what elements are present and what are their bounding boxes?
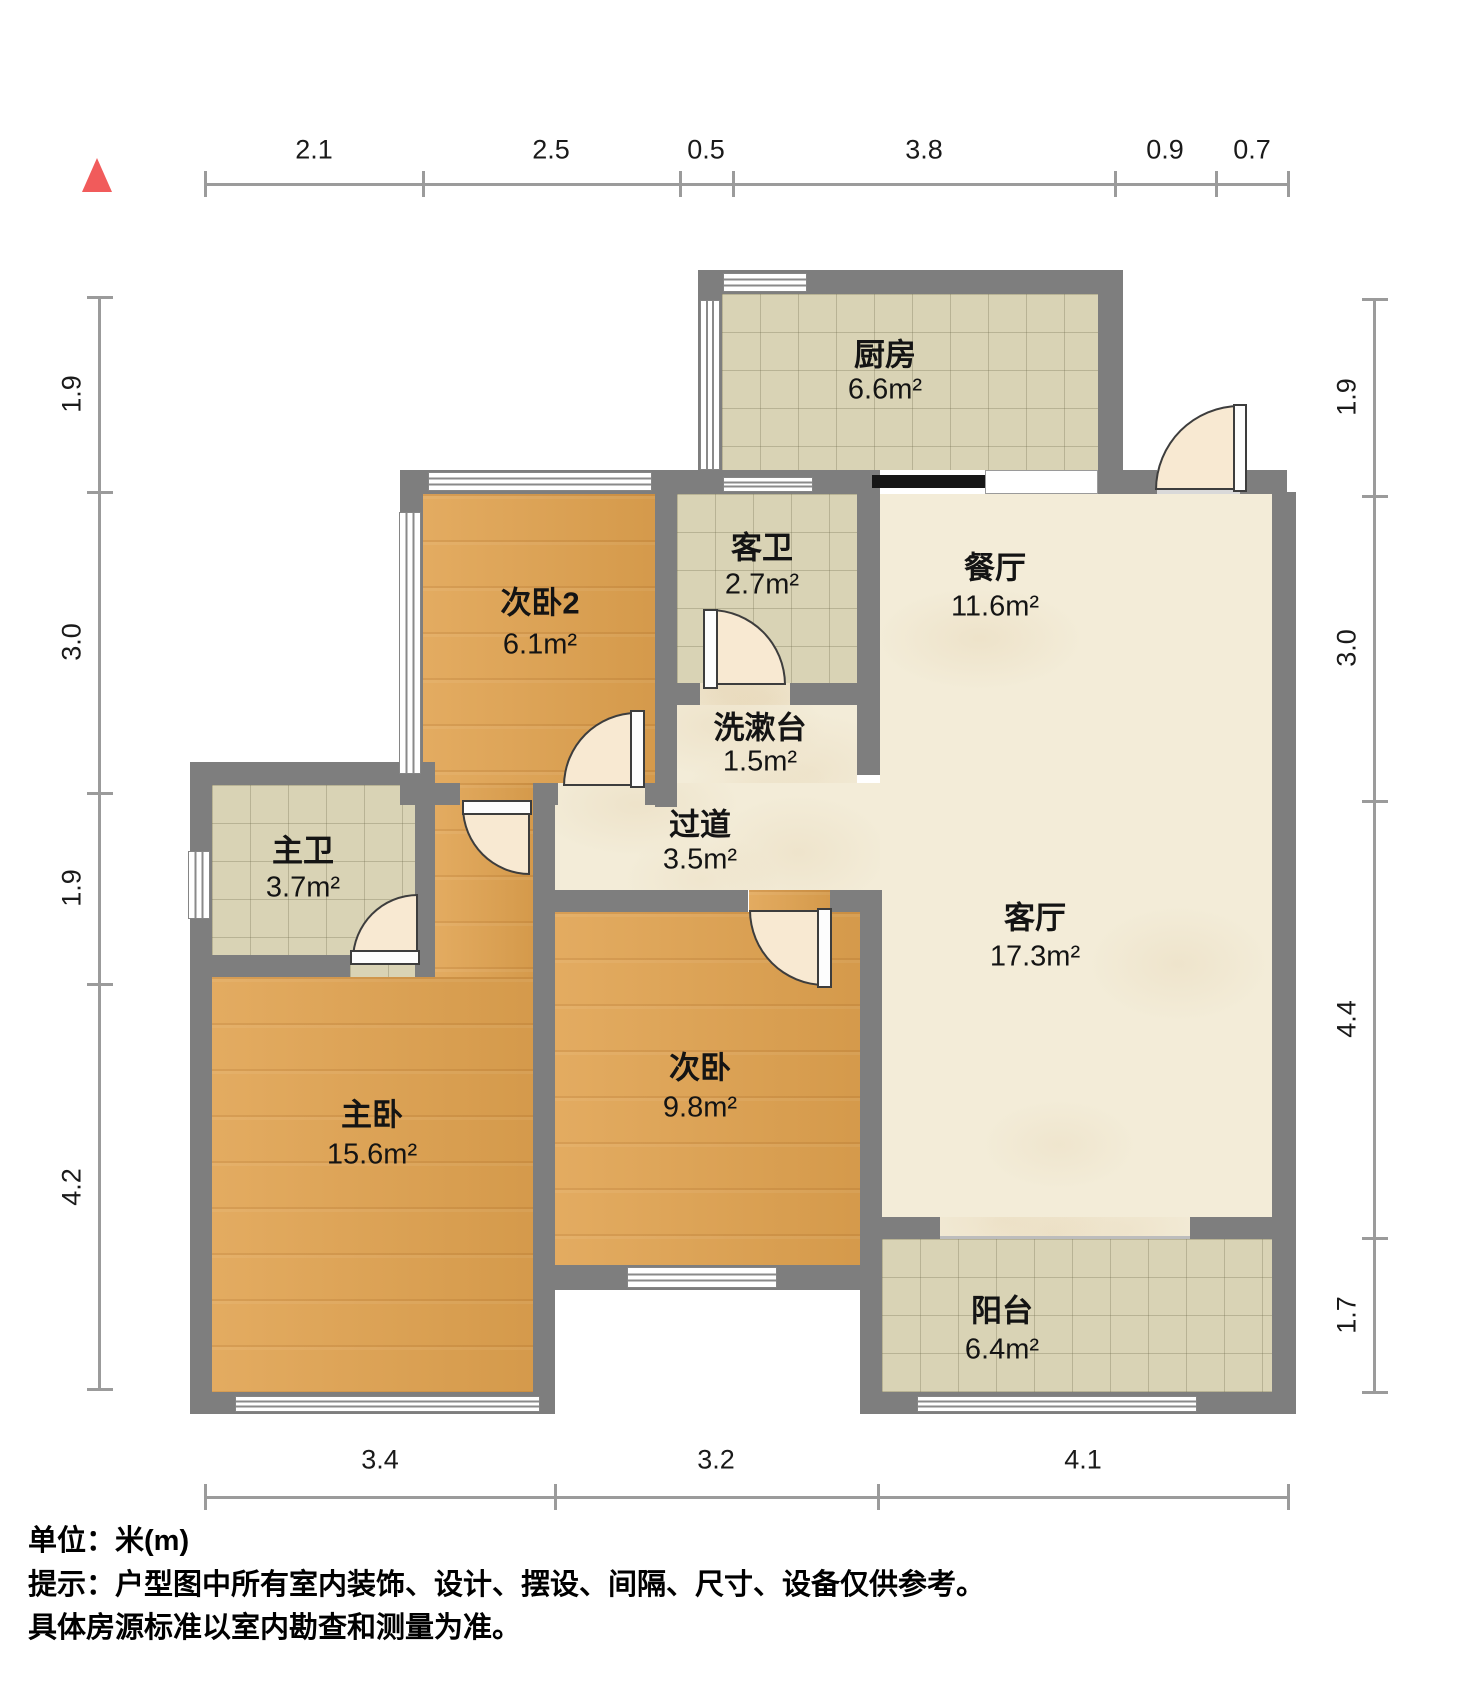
balcony-opening-threshold bbox=[940, 1217, 1190, 1239]
wall-masterbath-bottom-west bbox=[190, 955, 350, 977]
bedroom2-area: 6.1m² bbox=[503, 629, 577, 662]
dim-left-1: 3.0 bbox=[57, 623, 88, 661]
wall-entry-right bbox=[1240, 470, 1287, 494]
bedroom2-left-window bbox=[399, 512, 421, 774]
master-bedroom-floor bbox=[212, 977, 533, 1392]
bedroom-bottom-window bbox=[627, 1267, 777, 1288]
dim-left-2: 1.9 bbox=[57, 869, 88, 907]
wall-balcony-top-stub-right bbox=[1190, 1217, 1272, 1239]
living-area: 17.3m² bbox=[990, 941, 1080, 974]
dim-tick bbox=[1114, 171, 1117, 197]
dim-tick bbox=[1362, 800, 1388, 803]
wall-bedroom2-bottom-pier bbox=[533, 783, 558, 805]
wall-hallway-south-west bbox=[533, 890, 748, 912]
wall-guestbath-bottom-left bbox=[655, 683, 700, 705]
balcony-label: 阳台 bbox=[971, 1286, 1033, 1331]
dim-tick bbox=[87, 491, 113, 494]
dim-top-5: 0.7 bbox=[1233, 135, 1271, 166]
dim-tick bbox=[422, 171, 425, 197]
living-label: 客厅 bbox=[1004, 893, 1066, 938]
dim-line-left bbox=[98, 297, 101, 1390]
dim-tick bbox=[1287, 171, 1290, 197]
dim-left-3: 4.2 bbox=[57, 1168, 88, 1206]
dim-right-0: 1.9 bbox=[1332, 378, 1363, 416]
bedroom2-label: 次卧2 bbox=[500, 578, 579, 623]
wall-entry-left bbox=[1098, 470, 1157, 494]
kitchen-sliding-door-panel bbox=[985, 470, 1098, 494]
dim-left-0: 1.9 bbox=[57, 375, 88, 413]
kitchen-top-window bbox=[723, 273, 807, 292]
master-bottom-window bbox=[235, 1396, 540, 1412]
wall-masterbath-right bbox=[415, 785, 435, 977]
unit-note: 单位：米(m) bbox=[28, 1520, 985, 1564]
balcony-bottom-window bbox=[917, 1396, 1197, 1412]
dim-tick bbox=[87, 792, 113, 795]
dim-tick bbox=[1362, 1391, 1388, 1394]
dining-label: 餐厅 bbox=[964, 543, 1026, 588]
dim-tick bbox=[877, 1484, 880, 1510]
dim-tick bbox=[679, 171, 682, 197]
hallway-label: 过道 bbox=[669, 800, 731, 845]
guest-bath-door-leaf bbox=[703, 609, 718, 689]
kitchen-area: 6.6m² bbox=[848, 374, 922, 407]
master-bath-area: 3.7m² bbox=[266, 872, 340, 905]
dim-tick bbox=[554, 1484, 557, 1510]
kitchen-guestbath-window bbox=[723, 477, 813, 492]
washstand-area: 1.5m² bbox=[723, 746, 797, 779]
floorplan-canvas: 厨房 6.6m² 次卧2 6.1m² 客卫 2.7m² 餐厅 11.6m² 洗漱… bbox=[0, 0, 1476, 1692]
guest-bath-label: 客卫 bbox=[731, 523, 793, 568]
wall-bedroom-right-balcony-left bbox=[860, 890, 882, 1392]
washstand-label: 洗漱台 bbox=[714, 703, 807, 748]
dim-bottom-0: 3.4 bbox=[361, 1445, 399, 1476]
tip-note-1: 提示：户型图中所有室内装饰、设计、摆设、间隔、尺寸、设备仅供参考。 bbox=[28, 1564, 985, 1608]
dining-area: 11.6m² bbox=[951, 591, 1039, 624]
bedroom2-door-leaf bbox=[630, 710, 645, 788]
entry-door-swing bbox=[1155, 405, 1240, 490]
dim-top-3: 3.8 bbox=[905, 135, 943, 166]
dim-line-bottom bbox=[205, 1496, 1289, 1499]
hallway-area: 3.5m² bbox=[663, 844, 737, 877]
master-bedroom-area: 15.6m² bbox=[327, 1139, 417, 1172]
wall-hallway-west-bedroom-left bbox=[533, 805, 555, 1294]
dim-tick bbox=[204, 1484, 207, 1510]
dim-right-3: 1.7 bbox=[1332, 1296, 1363, 1334]
bedroom-label: 次卧 bbox=[669, 1043, 731, 1088]
master-bath-door-leaf bbox=[350, 950, 420, 965]
kitchen-sliding-door-track bbox=[872, 475, 985, 488]
master-bedroom-label: 主卧 bbox=[341, 1090, 403, 1135]
north-arrow-icon bbox=[82, 158, 112, 192]
dim-tick bbox=[1287, 1484, 1290, 1510]
wall-balcony-top-stub-left bbox=[882, 1217, 940, 1239]
master-bedroom-door-leaf bbox=[462, 800, 532, 815]
balcony-area: 6.4m² bbox=[965, 1334, 1039, 1367]
dim-tick bbox=[87, 983, 113, 986]
kitchen-left-window bbox=[700, 300, 720, 470]
dim-right-2: 4.4 bbox=[1332, 1000, 1363, 1038]
dim-tick bbox=[732, 171, 735, 197]
dim-tick bbox=[1362, 298, 1388, 301]
tip-note-2: 具体房源标准以室内勘查和测量为准。 bbox=[28, 1607, 985, 1651]
dim-top-0: 2.1 bbox=[295, 135, 333, 166]
wall-exterior-right bbox=[1272, 492, 1296, 1414]
dim-top-2: 0.5 bbox=[687, 135, 725, 166]
bedroom-area: 9.8m² bbox=[663, 1092, 737, 1125]
balcony-floor bbox=[882, 1239, 1272, 1392]
masterbath-left-window bbox=[188, 851, 210, 919]
dim-tick bbox=[1215, 171, 1218, 197]
wall-masterbath-bottom-east bbox=[420, 955, 435, 977]
dim-tick bbox=[87, 1388, 113, 1391]
dim-tick bbox=[87, 296, 113, 299]
living-dining-floor bbox=[880, 494, 1278, 1217]
wall-guestbath-left bbox=[655, 494, 677, 705]
dim-tick bbox=[204, 171, 207, 197]
dim-line-right bbox=[1373, 299, 1376, 1393]
master-bath-label: 主卫 bbox=[272, 826, 334, 871]
entry-door-leaf bbox=[1233, 404, 1247, 492]
dim-right-1: 3.0 bbox=[1332, 629, 1363, 667]
bedroom2-top-window bbox=[428, 472, 652, 491]
dim-bottom-2: 4.1 bbox=[1064, 1445, 1102, 1476]
dim-top-1: 2.5 bbox=[532, 135, 570, 166]
dim-tick bbox=[1362, 495, 1388, 498]
wall-kitchen-right bbox=[1098, 294, 1123, 470]
dim-bottom-1: 3.2 bbox=[697, 1445, 735, 1476]
wall-guestbath-east bbox=[857, 470, 880, 775]
bedroom-door-leaf bbox=[817, 908, 832, 988]
footer-notes: 单位：米(m) 提示：户型图中所有室内装饰、设计、摆设、间隔、尺寸、设备仅供参考… bbox=[28, 1520, 985, 1651]
dim-tick bbox=[1362, 1237, 1388, 1240]
dim-top-4: 0.9 bbox=[1146, 135, 1184, 166]
dim-line-top bbox=[205, 183, 1289, 186]
kitchen-label: 厨房 bbox=[854, 330, 916, 375]
guest-bath-area: 2.7m² bbox=[725, 569, 799, 602]
